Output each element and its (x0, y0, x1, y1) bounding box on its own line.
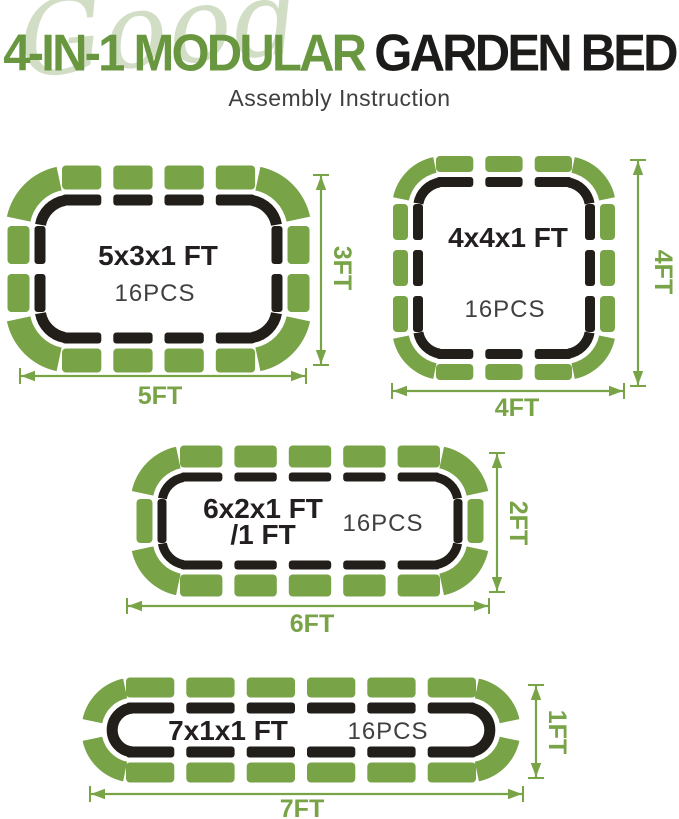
bed-panel (289, 446, 331, 468)
outline-dash (289, 473, 331, 482)
bed-panel (288, 226, 310, 264)
outline-dash (186, 703, 234, 714)
page-title: 4-IN-1 MODULARGARDEN BED (0, 24, 679, 83)
outline-corner-arc (41, 313, 65, 337)
dimension-arrowhead (128, 601, 142, 611)
outline-corner-arc (41, 201, 65, 225)
bed-panel (398, 575, 440, 597)
bed-panel (186, 678, 234, 698)
bed-corner-panel (439, 447, 488, 496)
outline-dash (307, 703, 355, 714)
outline-dash (186, 747, 234, 758)
bed-panel (436, 364, 473, 380)
bed-panel (367, 763, 415, 783)
outline-dash (413, 204, 423, 240)
dimension-arrowhead (316, 176, 326, 190)
outline-dash (165, 333, 204, 344)
bed-corner-panel (439, 546, 488, 595)
bed-panel (535, 364, 572, 380)
bed-diagram-6x2ft: 6x2x1 FT/1 FT16PCS2FT6FT (110, 443, 535, 635)
pcs-label: 16PCS (114, 280, 195, 307)
outline-dash (428, 747, 476, 758)
subtitle: Assembly Instruction (0, 85, 679, 112)
bed-corner-panel (572, 336, 615, 379)
outline-corner-arc (437, 477, 458, 498)
outline-dash (485, 177, 522, 187)
outline-dash (343, 473, 385, 482)
dimension-arrowhead (474, 601, 488, 611)
outline-dash (398, 561, 440, 570)
bed-panel (393, 250, 408, 286)
bed-panel (468, 499, 484, 543)
bed-corner-panel (393, 336, 436, 379)
bed-panel (8, 226, 30, 264)
bed-panel (126, 678, 174, 698)
bed-corner-panel (7, 167, 62, 222)
outline-dash (62, 195, 101, 206)
dimension-arrowhead (91, 789, 105, 799)
outline-dash (272, 226, 283, 264)
bed-panel (600, 204, 615, 240)
outline-corner-arc (418, 182, 439, 203)
outline-dash (216, 333, 255, 344)
outline-corner-arc (252, 313, 276, 337)
outline-dash (165, 195, 204, 206)
height-dimension-label: 4FT (649, 250, 677, 294)
outline-corner-arc (418, 333, 439, 354)
bed-panel (428, 678, 476, 698)
bed-panel (113, 166, 152, 190)
bed-panel (180, 446, 222, 468)
bed-panel (234, 575, 276, 597)
bed-panel (307, 763, 355, 783)
title-green-part: 4-IN-1 MODULAR (3, 25, 364, 82)
pcs-label: 16PCS (464, 296, 545, 323)
bed-panel (535, 156, 572, 172)
outline-dash (454, 499, 463, 543)
dimension-arrowhead (291, 371, 305, 381)
bed-panel (428, 763, 476, 783)
bed-corner-panel (255, 167, 310, 222)
outline-dash (113, 195, 152, 206)
bed-panel (393, 204, 408, 240)
bed-panel (180, 575, 222, 597)
dimension-arrowhead (21, 371, 35, 381)
dimension-arrowhead (609, 386, 623, 396)
dimension-arrowhead (393, 386, 407, 396)
bed-corner-panel (132, 447, 181, 496)
height-dimension-label: 3FT (328, 246, 356, 290)
bed-panel (289, 575, 331, 597)
size-label-line2: /1 FT (230, 519, 295, 550)
outline-corner-arc (437, 544, 458, 565)
bed-panel (234, 446, 276, 468)
bed-corner-panel (255, 316, 310, 371)
outline-dash (585, 296, 595, 332)
pcs-label: 16PCS (342, 510, 423, 537)
outline-dash (585, 250, 595, 286)
outline-dash (126, 703, 174, 714)
outline-corner-arc (112, 708, 132, 752)
bed-panel (343, 446, 385, 468)
outline-dash (367, 703, 415, 714)
outline-dash (158, 499, 167, 543)
title-dark-part: GARDEN BED (374, 25, 675, 82)
bed-panel (62, 166, 101, 190)
bed-panel (216, 166, 255, 190)
bed-panel (216, 349, 255, 373)
bed-diagram-4x4ft: 4x4x1 FT16PCS4FT4FT (385, 145, 679, 423)
outline-dash (272, 274, 283, 312)
bed-panel (436, 156, 473, 172)
outline-dash (126, 747, 174, 758)
bed-panel (186, 763, 234, 783)
dimension-arrowhead (531, 686, 541, 700)
outline-dash (367, 747, 415, 758)
bed-panel (600, 250, 615, 286)
outline-dash (180, 473, 222, 482)
outline-dash (35, 226, 46, 264)
outline-dash (62, 333, 101, 344)
outline-corner-arc (569, 182, 590, 203)
bed-corner-panel (393, 157, 436, 200)
bed-panel (165, 166, 204, 190)
bed-panel (367, 678, 415, 698)
outline-dash (413, 250, 423, 286)
outline-dash (343, 561, 385, 570)
bed-panel (247, 678, 295, 698)
dimension-arrowhead (633, 161, 643, 175)
outline-corner-arc (162, 477, 183, 498)
width-dimension-label: 6FT (290, 610, 334, 638)
outline-dash (535, 349, 572, 359)
width-dimension-label: 5FT (138, 382, 182, 410)
dimension-arrowhead (508, 789, 522, 799)
dimension-arrowhead (492, 577, 502, 591)
width-dimension-label: 7FT (280, 795, 324, 819)
bed-panel (485, 364, 522, 380)
bed-panel (307, 678, 355, 698)
page: Good 4-IN-1 MODULARGARDEN BED Assembly I… (0, 0, 679, 819)
bed-panel (600, 296, 615, 332)
bed-panel (137, 499, 153, 543)
dimension-arrowhead (531, 763, 541, 777)
size-label: 7x1x1 FT (168, 715, 288, 746)
bed-panel (343, 575, 385, 597)
outline-dash (35, 274, 46, 312)
dimension-arrowhead (316, 350, 326, 364)
outline-dash (247, 703, 295, 714)
bed-diagram-7x1ft: 7x1x1 FT16PCS1FT7FT (70, 668, 579, 819)
outline-dash (216, 195, 255, 206)
outline-dash (180, 561, 222, 570)
height-dimension-label: 1FT (543, 710, 571, 754)
size-label: 4x4x1 FT (448, 222, 568, 253)
outline-corner-arc (162, 544, 183, 565)
dimension-arrowhead (633, 371, 643, 385)
bed-panel (398, 446, 440, 468)
outline-dash (485, 349, 522, 359)
bed-panel (165, 349, 204, 373)
bed-panel (393, 296, 408, 332)
height-dimension-label: 2FT (504, 501, 532, 545)
size-label: 5x3x1 FT (98, 240, 218, 271)
bed-panel (288, 274, 310, 312)
outline-dash (113, 333, 152, 344)
dimension-arrowhead (492, 454, 502, 468)
outline-dash (398, 473, 440, 482)
outline-dash (535, 177, 572, 187)
outline-dash (428, 703, 476, 714)
outline-dash (585, 204, 595, 240)
outline-dash (234, 561, 276, 570)
outline-dash (413, 296, 423, 332)
bed-panel (113, 349, 152, 373)
outline-dash (436, 177, 473, 187)
bed-corner-panel (132, 546, 181, 595)
bed-panel (126, 763, 174, 783)
width-dimension-label: 4FT (495, 394, 539, 422)
bed-panel (485, 156, 522, 172)
bed-corner-panel (7, 316, 62, 371)
bed-corner-panel (572, 157, 615, 200)
outline-dash (436, 349, 473, 359)
outline-dash (234, 473, 276, 482)
bed-panel (8, 274, 30, 312)
outline-corner-arc (569, 333, 590, 354)
pcs-label: 16PCS (347, 718, 428, 745)
outline-dash (307, 747, 355, 758)
outline-corner-arc (252, 201, 276, 225)
bed-panel (247, 763, 295, 783)
outline-dash (289, 561, 331, 570)
outline-dash (247, 747, 295, 758)
bed-diagram-5x3ft: 5x3x1 FT16PCS3FT5FT (5, 163, 350, 413)
bed-panel (62, 349, 101, 373)
outline-corner-arc (470, 708, 490, 752)
